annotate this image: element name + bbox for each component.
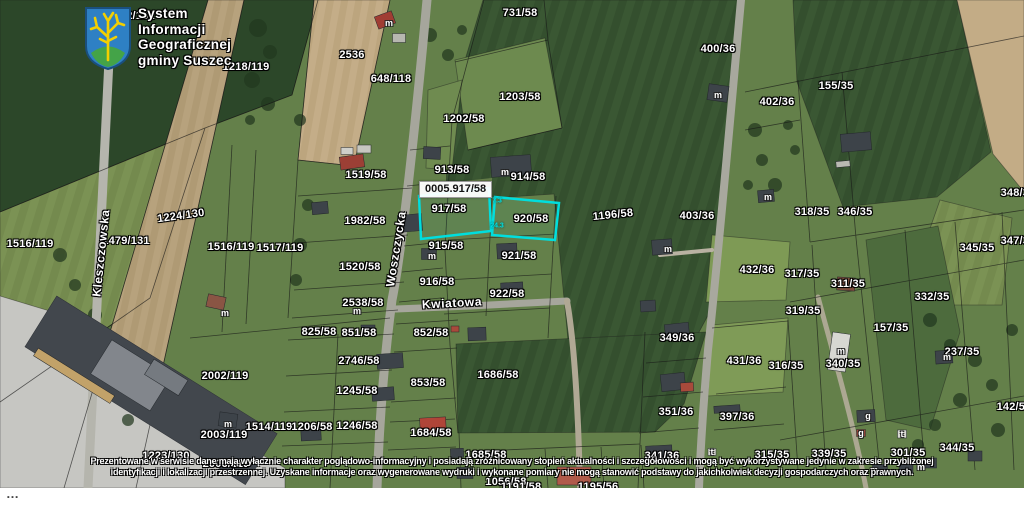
app-title-line: Geograficznej <box>138 37 232 53</box>
aerial-basemap <box>0 0 1024 488</box>
map-viewport[interactable]: 2132/131731/581218/1192536648/118400/364… <box>0 0 1024 488</box>
status-footer: … <box>0 488 1024 505</box>
app-title-line: gminy Suszec <box>138 53 232 69</box>
app-title-line: System <box>138 6 232 22</box>
gis-app-window: 2132/131731/581218/1192536648/118400/364… <box>0 0 1024 505</box>
disclaimer-line-1: Prezentowane w serwisie dane mają wyłącz… <box>7 456 1017 467</box>
disclaimer-line-2: identyfikacji i lokalizacji przestrzenne… <box>7 467 1017 478</box>
app-logo: System Informacji Geograficznej gminy Su… <box>84 6 232 70</box>
map-disclaimer: Prezentowane w serwisie dane mają wyłącz… <box>7 456 1017 478</box>
footer-ellipsis: … <box>6 486 19 501</box>
selected-parcel-label-box: 0005.917/58 <box>419 181 492 198</box>
highlighted-parcel-920-58 <box>492 197 559 240</box>
app-title-line: Informacji <box>138 22 232 38</box>
suszec-coat-of-arms <box>84 6 132 70</box>
app-title: System Informacji Geograficznej gminy Su… <box>138 6 232 70</box>
